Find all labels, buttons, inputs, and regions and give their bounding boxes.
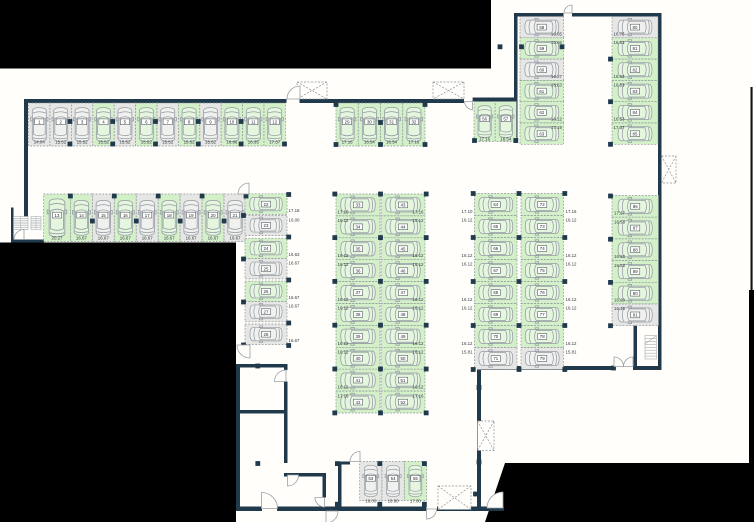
svg-text:16.53: 16.53 [614, 83, 626, 88]
svg-text:47: 47 [401, 290, 406, 295]
svg-text:16.00: 16.00 [365, 499, 377, 504]
svg-text:79: 79 [540, 356, 545, 361]
svg-text:16.12: 16.12 [566, 218, 578, 223]
svg-text:83: 83 [633, 89, 638, 94]
svg-text:13: 13 [55, 213, 60, 218]
svg-text:17.16: 17.16 [408, 140, 420, 145]
svg-text:61: 61 [539, 89, 544, 94]
svg-text:84: 84 [633, 110, 638, 115]
svg-text:45: 45 [401, 246, 406, 251]
svg-text:39: 39 [356, 334, 361, 339]
svg-text:35: 35 [356, 246, 361, 251]
svg-text:81: 81 [633, 46, 638, 51]
svg-text:15.52: 15.52 [98, 140, 110, 145]
svg-text:16.53: 16.53 [614, 117, 626, 122]
svg-text:32: 32 [411, 120, 416, 125]
svg-text:16.12: 16.12 [462, 306, 474, 311]
svg-text:16.54: 16.54 [386, 140, 398, 145]
svg-text:27: 27 [264, 309, 269, 314]
svg-text:16.12: 16.12 [413, 218, 425, 223]
svg-text:16.12: 16.12 [462, 341, 474, 346]
svg-text:41: 41 [356, 378, 361, 383]
svg-text:33: 33 [356, 203, 361, 208]
svg-text:16.67: 16.67 [186, 236, 198, 241]
svg-text:12: 12 [272, 120, 277, 125]
svg-text:17.10: 17.10 [462, 209, 474, 214]
svg-text:37: 37 [356, 290, 361, 295]
svg-text:40: 40 [356, 356, 361, 361]
svg-text:52: 52 [401, 400, 406, 405]
svg-text:87: 87 [633, 226, 638, 231]
svg-text:16.27: 16.27 [551, 74, 563, 79]
svg-text:17.37: 17.37 [269, 140, 281, 145]
svg-text:16.67: 16.67 [98, 236, 110, 241]
svg-text:15.52: 15.52 [184, 140, 196, 145]
svg-text:16.00: 16.00 [388, 499, 400, 504]
svg-text:42: 42 [356, 400, 361, 405]
svg-text:51: 51 [401, 378, 406, 383]
svg-text:68: 68 [493, 290, 498, 295]
svg-text:17.16: 17.16 [413, 393, 425, 398]
svg-text:65: 65 [493, 224, 498, 229]
svg-text:16.35: 16.35 [248, 140, 260, 145]
svg-text:16.12: 16.12 [462, 218, 474, 223]
svg-text:16.53: 16.53 [614, 263, 626, 268]
svg-text:24: 24 [264, 246, 269, 251]
svg-text:86: 86 [633, 204, 638, 209]
svg-text:20.27: 20.27 [52, 236, 64, 241]
svg-text:14.04: 14.04 [34, 140, 46, 145]
svg-text:17.16: 17.16 [338, 393, 350, 398]
svg-text:57: 57 [503, 117, 508, 122]
svg-text:54: 54 [391, 476, 396, 481]
svg-text:16.54: 16.54 [500, 137, 512, 142]
svg-text:64: 64 [493, 202, 498, 207]
svg-text:16.12: 16.12 [338, 297, 350, 302]
svg-text:74: 74 [540, 246, 545, 251]
svg-text:46: 46 [401, 268, 406, 273]
svg-text:43: 43 [401, 203, 406, 208]
svg-text:72: 72 [540, 202, 545, 207]
svg-text:16.67: 16.67 [289, 338, 301, 343]
svg-text:16.12: 16.12 [413, 306, 425, 311]
svg-text:80: 80 [633, 25, 638, 30]
svg-text:88: 88 [633, 247, 638, 252]
svg-text:30: 30 [367, 120, 372, 125]
svg-text:16.53: 16.53 [614, 219, 626, 224]
svg-text:62: 62 [539, 110, 544, 115]
svg-text:16.12: 16.12 [566, 262, 578, 267]
svg-text:16: 16 [123, 213, 128, 218]
svg-text:16.12: 16.12 [413, 297, 425, 302]
svg-text:16.12: 16.12 [338, 218, 350, 223]
svg-text:16.65: 16.65 [551, 31, 563, 36]
svg-text:17.16: 17.16 [413, 209, 425, 214]
svg-text:20: 20 [211, 213, 216, 218]
svg-text:21: 21 [233, 213, 238, 218]
svg-text:16.20: 16.20 [614, 298, 626, 303]
svg-text:16.12: 16.12 [566, 341, 578, 346]
svg-text:17: 17 [145, 213, 150, 218]
svg-text:76: 76 [540, 290, 545, 295]
svg-text:11: 11 [251, 120, 256, 125]
svg-text:53: 53 [368, 476, 373, 481]
svg-text:17.18: 17.18 [289, 208, 301, 213]
svg-text:16.12: 16.12 [413, 341, 425, 346]
svg-text:17.16: 17.16 [342, 140, 354, 145]
svg-text:16.75: 16.75 [614, 31, 626, 36]
svg-text:16.67: 16.67 [76, 236, 88, 241]
svg-text:16.12: 16.12 [462, 262, 474, 267]
svg-text:28: 28 [264, 332, 269, 337]
svg-text:63: 63 [539, 131, 544, 136]
svg-text:16.12: 16.12 [338, 350, 350, 355]
svg-text:16.12: 16.12 [566, 306, 578, 311]
svg-text:17.37: 17.37 [614, 211, 626, 216]
svg-text:16.86: 16.86 [226, 140, 238, 145]
svg-text:59: 59 [539, 46, 544, 51]
svg-text:16.53: 16.53 [614, 40, 626, 45]
svg-text:75: 75 [540, 268, 545, 273]
svg-text:16.12: 16.12 [413, 262, 425, 267]
svg-text:16.67: 16.67 [164, 236, 176, 241]
svg-text:16.12: 16.12 [413, 385, 425, 390]
svg-text:89: 89 [633, 269, 638, 274]
svg-text:38: 38 [356, 312, 361, 317]
svg-text:15.52: 15.52 [55, 140, 67, 145]
svg-text:15.52: 15.52 [119, 140, 131, 145]
svg-text:71: 71 [493, 356, 498, 361]
svg-text:91: 91 [633, 313, 638, 318]
svg-text:60: 60 [539, 68, 544, 73]
svg-text:23: 23 [264, 223, 269, 228]
svg-text:82: 82 [633, 68, 638, 73]
svg-text:50: 50 [401, 356, 406, 361]
svg-text:16.67: 16.67 [230, 236, 242, 241]
svg-text:16.67: 16.67 [289, 261, 301, 266]
svg-text:22: 22 [264, 202, 269, 207]
svg-text:49: 49 [401, 334, 406, 339]
svg-text:16.67: 16.67 [289, 295, 301, 300]
svg-text:16.53: 16.53 [614, 74, 626, 79]
svg-text:16.53: 16.53 [614, 254, 626, 259]
svg-text:17.16: 17.16 [338, 209, 350, 214]
svg-text:16.12: 16.12 [338, 341, 350, 346]
svg-text:16.12: 16.12 [338, 306, 350, 311]
svg-text:18: 18 [167, 213, 172, 218]
svg-text:73: 73 [540, 224, 545, 229]
svg-text:16.12: 16.12 [413, 350, 425, 355]
svg-text:85: 85 [633, 131, 638, 136]
svg-text:17.19: 17.19 [551, 125, 563, 130]
svg-text:16.67: 16.67 [289, 304, 301, 309]
svg-text:17.16: 17.16 [566, 209, 578, 214]
svg-text:16.12: 16.12 [338, 385, 350, 390]
svg-text:15: 15 [101, 213, 106, 218]
svg-text:16.53: 16.53 [551, 83, 563, 88]
svg-text:16.12: 16.12 [462, 297, 474, 302]
svg-text:66: 66 [493, 246, 498, 251]
svg-text:15.52: 15.52 [141, 140, 153, 145]
svg-text:31: 31 [389, 120, 394, 125]
svg-text:15.52: 15.52 [77, 140, 89, 145]
svg-text:16.12: 16.12 [566, 253, 578, 258]
svg-text:26: 26 [264, 289, 269, 294]
svg-text:58: 58 [539, 25, 544, 30]
svg-text:14: 14 [79, 213, 84, 218]
svg-text:25: 25 [264, 266, 269, 271]
svg-text:10: 10 [229, 120, 234, 125]
svg-text:67: 67 [493, 268, 498, 273]
svg-text:48: 48 [401, 312, 406, 317]
svg-text:15.52: 15.52 [205, 140, 217, 145]
svg-text:17.16: 17.16 [479, 137, 491, 142]
svg-text:70: 70 [493, 334, 498, 339]
svg-text:16.12: 16.12 [413, 253, 425, 258]
svg-text:16.16: 16.16 [614, 306, 626, 311]
svg-text:56: 56 [482, 117, 487, 122]
svg-text:16.12: 16.12 [551, 117, 563, 122]
svg-text:16.12: 16.12 [338, 253, 350, 258]
svg-text:34: 34 [356, 225, 361, 230]
svg-text:78: 78 [540, 334, 545, 339]
svg-text:16.54: 16.54 [364, 140, 376, 145]
svg-text:55: 55 [413, 476, 418, 481]
svg-text:36: 36 [356, 268, 361, 273]
svg-text:16.12: 16.12 [338, 262, 350, 267]
svg-text:17.37: 17.37 [614, 125, 626, 130]
svg-text:15.81: 15.81 [462, 350, 474, 355]
svg-text:15.52: 15.52 [162, 140, 174, 145]
svg-text:16.67: 16.67 [120, 236, 132, 241]
svg-text:19: 19 [189, 213, 194, 218]
svg-text:16.63: 16.63 [289, 252, 301, 257]
svg-text:16.12: 16.12 [566, 297, 578, 302]
svg-text:29: 29 [345, 120, 350, 125]
svg-text:17.00: 17.00 [410, 499, 422, 504]
svg-text:44: 44 [401, 225, 406, 230]
svg-text:77: 77 [540, 312, 545, 317]
svg-text:16.67: 16.67 [208, 236, 220, 241]
svg-text:90: 90 [633, 291, 638, 296]
svg-text:16.12: 16.12 [462, 253, 474, 258]
svg-text:16.66: 16.66 [551, 40, 563, 45]
svg-text:16.67: 16.67 [142, 236, 154, 241]
svg-text:16.00: 16.00 [289, 217, 301, 222]
svg-text:69: 69 [493, 312, 498, 317]
svg-text:15.81: 15.81 [566, 350, 578, 355]
